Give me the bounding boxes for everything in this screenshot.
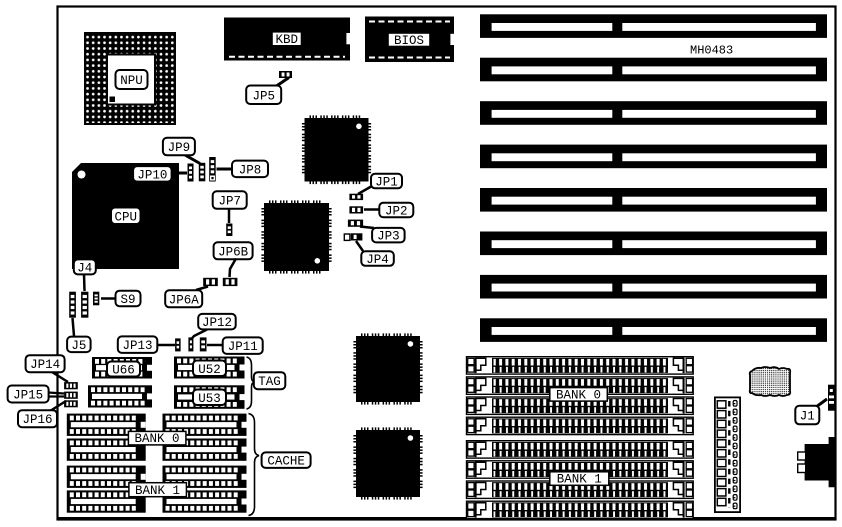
svg-text:MH0483: MH0483 (690, 44, 733, 58)
svg-text:JP8: JP8 (239, 163, 262, 177)
svg-text:JP9: JP9 (168, 141, 191, 155)
svg-text:JP12: JP12 (202, 316, 232, 330)
svg-text:KBD: KBD (276, 33, 299, 47)
svg-text:TAG: TAG (258, 375, 281, 389)
svg-text:BANK 0: BANK 0 (134, 432, 179, 446)
svg-text:BANK 1: BANK 1 (135, 484, 180, 498)
svg-text:JP10: JP10 (137, 168, 167, 182)
svg-text:S9: S9 (120, 293, 135, 307)
svg-text:JP2: JP2 (385, 204, 408, 218)
svg-text:CPU: CPU (114, 210, 137, 224)
svg-text:JP15: JP15 (13, 389, 43, 403)
svg-text:JP14: JP14 (30, 358, 60, 372)
svg-text:JP13: JP13 (123, 339, 153, 353)
svg-text:U52: U52 (198, 363, 221, 377)
svg-text:J1: J1 (800, 410, 815, 424)
svg-text:J4: J4 (77, 261, 92, 275)
svg-text:JP1: JP1 (375, 176, 398, 190)
svg-text:NPU: NPU (120, 74, 143, 88)
svg-text:BIOS: BIOS (394, 34, 424, 48)
svg-text:JP11: JP11 (228, 340, 258, 354)
svg-text:JP16: JP16 (22, 413, 52, 427)
svg-text:J5: J5 (71, 339, 86, 353)
svg-text:JP7: JP7 (218, 195, 241, 209)
svg-text:JP6B: JP6B (218, 245, 249, 259)
svg-text:U66: U66 (112, 364, 135, 378)
svg-text:CACHE: CACHE (267, 455, 305, 469)
svg-text:JP6A: JP6A (169, 293, 200, 307)
svg-text:JP3: JP3 (377, 230, 400, 244)
svg-text:JP5: JP5 (252, 89, 275, 103)
svg-text:BANK 0: BANK 0 (556, 388, 601, 402)
svg-text:U53: U53 (198, 392, 221, 406)
svg-text:JP4: JP4 (366, 253, 389, 267)
svg-text:BANK 1: BANK 1 (557, 473, 602, 487)
